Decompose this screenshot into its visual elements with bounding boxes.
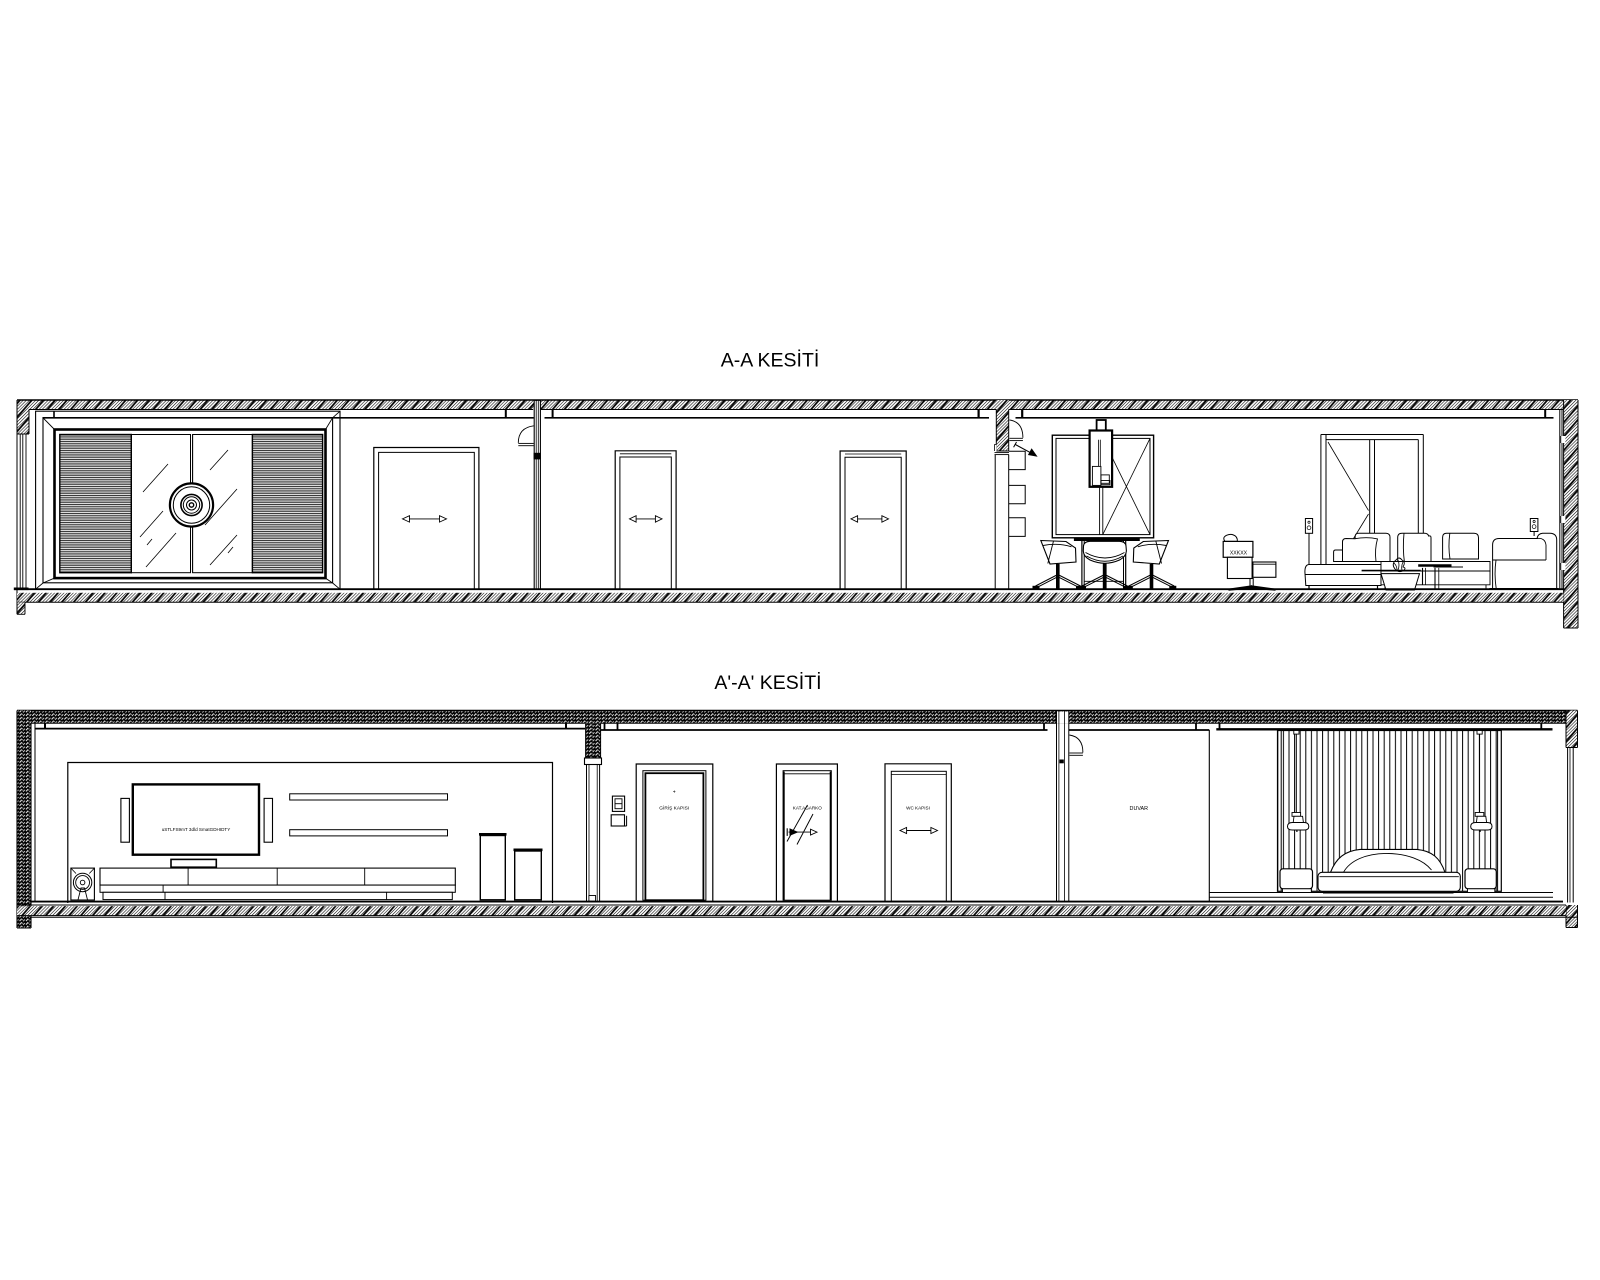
svg-text:KAT.AGARKO: KAT.AGARKO: [793, 806, 822, 811]
svg-text:GİRİŞ KAPISI: GİRİŞ KAPISI: [659, 805, 689, 812]
svg-text:WC KAPISI: WC KAPISI: [906, 806, 930, 811]
svg-text:XXKXX: XXKXX: [1230, 551, 1248, 557]
svg-text:uSTLFS9mT 3dld SmatGDHIDTY: uSTLFS9mT 3dld SmatGDHIDTY: [162, 827, 231, 832]
svg-text:A-A KESİTİ: A-A KESİTİ: [721, 349, 820, 372]
svg-text:DUVAR: DUVAR: [1130, 806, 1149, 812]
svg-text:A'-A' KESİTİ: A'-A' KESİTİ: [714, 671, 821, 694]
svg-text:+: +: [673, 790, 676, 796]
